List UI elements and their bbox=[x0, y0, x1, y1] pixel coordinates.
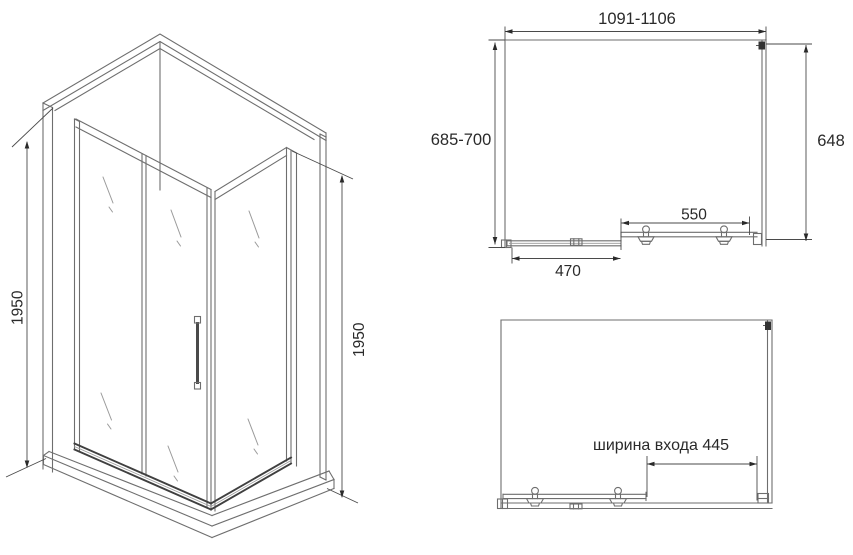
right-wall-profile bbox=[320, 134, 326, 480]
top-depth-label: 685-700 bbox=[431, 131, 492, 149]
technical-drawing: 1950 1950 bbox=[0, 0, 853, 555]
roller bbox=[638, 226, 654, 244]
fixed-panel-label: 470 bbox=[555, 263, 581, 280]
roller bbox=[610, 487, 627, 506]
roller bbox=[527, 487, 544, 506]
top-width-label: 1091-1106 bbox=[598, 10, 676, 28]
front-right-glass-wall bbox=[211, 148, 297, 510]
top-plan-sliding-door bbox=[621, 226, 762, 245]
entry-plan-view: ширина входа 445 bbox=[498, 320, 773, 509]
iso-height-left-label: 1950 bbox=[10, 290, 27, 325]
iso-height-left-dimension: 1950 bbox=[6, 108, 53, 477]
left-wall-profile bbox=[43, 103, 53, 472]
door-width-label: 550 bbox=[681, 207, 707, 224]
iso-height-right-dimension: 1950 bbox=[292, 151, 368, 503]
iso-view: 1950 1950 bbox=[6, 34, 368, 538]
iso-height-right-label: 1950 bbox=[351, 322, 368, 357]
front-left-glass-wall bbox=[75, 119, 216, 511]
door-handle bbox=[195, 317, 201, 390]
fixed-panel-dimension: 470 bbox=[512, 248, 621, 281]
top-plan-walls bbox=[502, 40, 767, 248]
door-dimension: 550 bbox=[621, 207, 750, 251]
entry-width-label: ширина входа 445 bbox=[593, 437, 729, 454]
entry-width-dimension: ширина входа 445 bbox=[593, 437, 757, 501]
top-plan-view: 1091-1106 685-700 648 550 bbox=[431, 10, 845, 280]
roof-frame bbox=[43, 34, 326, 190]
top-width-dimension: 1091-1106 bbox=[505, 10, 766, 40]
side-glass-dimension: 648 bbox=[766, 44, 845, 241]
side-glass-label: 648 bbox=[817, 132, 845, 150]
technical-drawing-canvas: 1950 1950 bbox=[0, 0, 853, 555]
top-plan-fixed-panel bbox=[507, 239, 621, 246]
wall-clamp bbox=[759, 42, 766, 50]
roller bbox=[716, 226, 732, 244]
top-depth-dimension: 685-700 bbox=[431, 40, 505, 248]
glass-marks bbox=[101, 177, 259, 481]
entry-plan-walls bbox=[498, 320, 773, 509]
door-end-bracket bbox=[754, 234, 762, 245]
wall-clamp bbox=[765, 322, 771, 331]
panel-clamp bbox=[571, 239, 583, 246]
